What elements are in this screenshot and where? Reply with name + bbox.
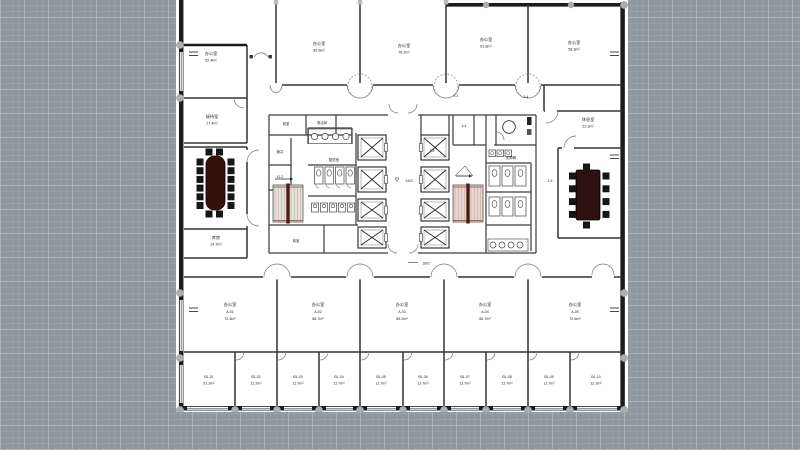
room-label: B1-01 — [204, 375, 213, 379]
svg-text:11.7m²: 11.7m² — [417, 382, 429, 386]
annotation-text: 2.8 — [430, 149, 435, 153]
annotation-text: 11.2 — [277, 175, 283, 179]
room-label: B1-04 — [334, 375, 343, 379]
svg-text:A-05: A-05 — [571, 310, 578, 314]
room-label: 办公室 — [312, 301, 325, 308]
room-label: 办公室 — [480, 36, 493, 43]
svg-text:22.3m²: 22.3m² — [582, 125, 594, 129]
room-label: B1-10 — [591, 375, 600, 379]
svg-text:11.7m²: 11.7m² — [333, 382, 345, 386]
dimension-text: 1402 — [405, 179, 413, 183]
floorplan-drawing[interactable]: 办公室 52.4m² 办公室 82.6m² 办公室 76.2m² 办公室 61.… — [176, 0, 628, 412]
svg-text:12.3m²: 12.3m² — [590, 382, 602, 386]
room-label: B1-07 — [460, 375, 469, 379]
room-label: 办公室 — [396, 301, 409, 308]
conference-room-left — [206, 156, 225, 210]
room-label: 办公室 — [398, 42, 411, 49]
room-label: B1-08 — [502, 375, 511, 379]
room-label: B1-09 — [544, 375, 553, 379]
svg-text:A-01: A-01 — [226, 310, 233, 314]
svg-text:51.3m²: 51.3m² — [203, 382, 215, 386]
svg-text:66.7m²: 66.7m² — [479, 317, 491, 321]
svg-text:72.3m²: 72.3m² — [224, 317, 236, 321]
svg-text:11.7m²: 11.7m² — [292, 382, 304, 386]
svg-text:11.2m²: 11.2m² — [250, 382, 262, 386]
annotation-text: 前室 — [293, 238, 300, 243]
room-label: 办公室 — [568, 39, 581, 46]
room-label: 办公室 — [313, 40, 326, 47]
annotation-text: 4.2 — [454, 94, 459, 98]
annotation-text: 4.4 — [462, 124, 467, 128]
svg-text:65.2m²: 65.2m² — [396, 317, 408, 321]
svg-text:66.7m²: 66.7m² — [312, 317, 324, 321]
annotation-text: 管井 — [277, 149, 284, 154]
annotation-text: 3-4 — [524, 95, 529, 99]
svg-text:72.6m²: 72.6m² — [569, 317, 581, 321]
svg-text:82.6m²: 82.6m² — [313, 49, 325, 53]
svg-text:A-04: A-04 — [481, 310, 488, 314]
room-label: 库房 — [212, 234, 220, 241]
conference-table — [206, 156, 225, 210]
room-label: 办公室 — [479, 301, 492, 308]
svg-text:14.7m²: 14.7m² — [210, 243, 222, 247]
annotation-text: 1.5 — [548, 179, 553, 183]
dimension-text: 1602 — [422, 262, 430, 266]
room-label: B1-02 — [251, 375, 260, 379]
room-label: 办公室 — [205, 50, 218, 57]
annotation-text: 清洁间 — [317, 120, 328, 125]
room-label: B1-06 — [418, 375, 427, 379]
svg-text:11.7m²: 11.7m² — [459, 382, 471, 386]
floorplan-paper — [176, 0, 628, 412]
accessible-wc-fixture — [503, 121, 516, 134]
svg-text:11.7m²: 11.7m² — [543, 382, 555, 386]
conference-room-right — [576, 170, 600, 220]
annotation-text: 盥洗室 — [329, 157, 340, 162]
annotation-text: 前室 — [283, 121, 290, 126]
svg-text:A-02: A-02 — [314, 310, 321, 314]
annotation-text: 无障碍 — [506, 155, 517, 160]
svg-text:A-03: A-03 — [398, 310, 405, 314]
svg-text:11.7m²: 11.7m² — [375, 382, 387, 386]
svg-text:58.3m²: 58.3m² — [568, 48, 580, 52]
conference-table — [576, 170, 600, 220]
svg-text:61.8m²: 61.8m² — [480, 45, 492, 49]
room-label: 休息室 — [582, 116, 595, 123]
cad-canvas[interactable]: 办公室 52.4m² 办公室 82.6m² 办公室 76.2m² 办公室 61.… — [0, 0, 800, 450]
room-label: B1-03 — [293, 375, 302, 379]
room-label: B1-05 — [376, 375, 385, 379]
room-label: 办公室 — [569, 301, 582, 308]
svg-text:76.2m²: 76.2m² — [398, 51, 410, 55]
svg-text:11.7m²: 11.7m² — [501, 382, 513, 386]
svg-text:52.4m²: 52.4m² — [205, 59, 217, 63]
room-label: 接待室 — [206, 113, 219, 120]
room-label: 办公室 — [224, 301, 237, 308]
svg-text:27.4m²: 27.4m² — [206, 122, 218, 126]
